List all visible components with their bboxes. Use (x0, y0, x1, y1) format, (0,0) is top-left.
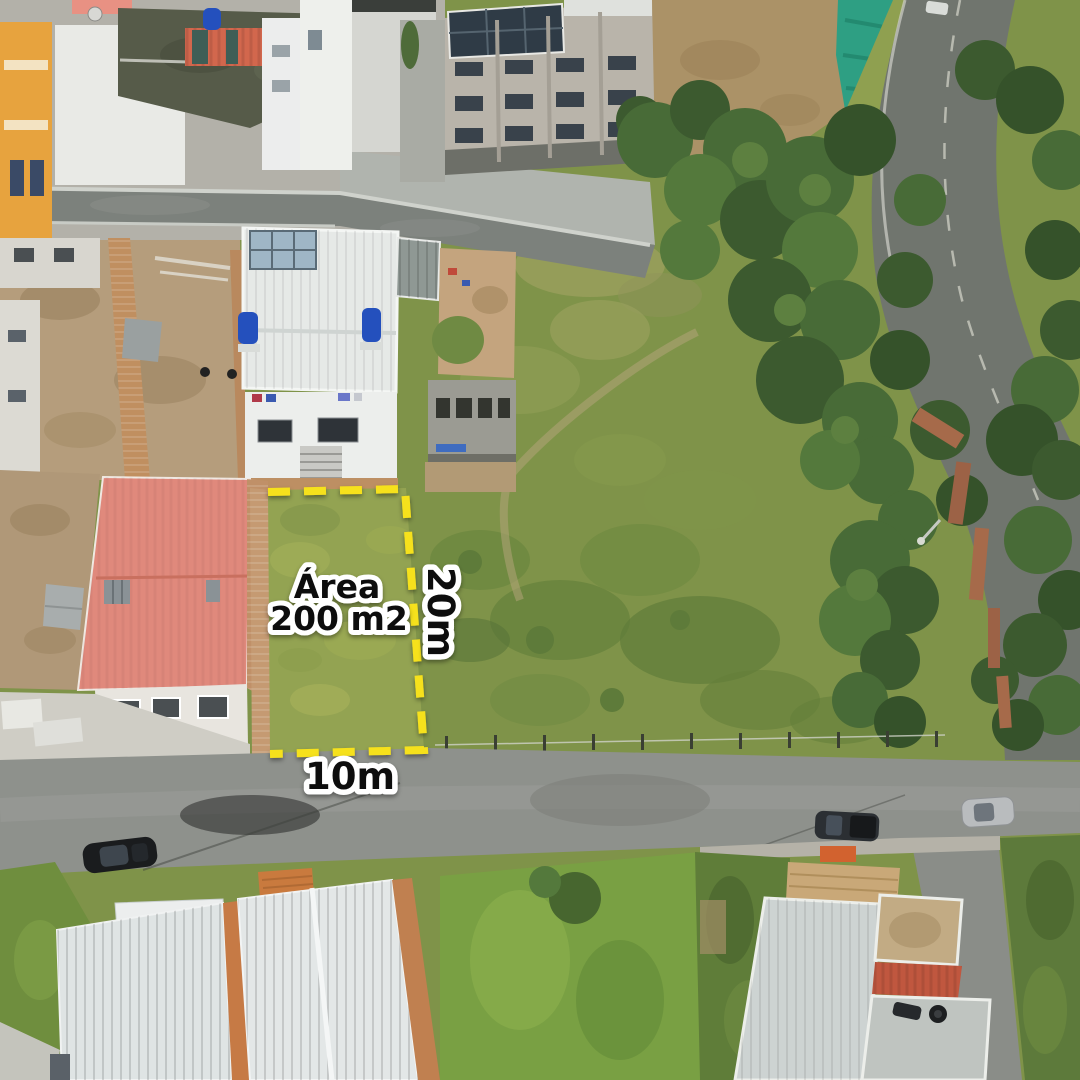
bottom-lawn (440, 852, 700, 1080)
orange-building (0, 22, 52, 254)
red-tile-roof (185, 28, 262, 66)
side-length-label: 20m (419, 567, 462, 657)
satellite-dish (88, 7, 102, 21)
aerial-scene: Área 200 m2 20m 10m (0, 0, 1080, 1080)
salmon-roof (78, 477, 250, 690)
unfinished-house (428, 380, 516, 462)
front-length-label: 10m (305, 755, 395, 798)
white-house-c (300, 0, 352, 170)
pickup-truck (814, 810, 879, 841)
area-label-line2: 200 m2 (270, 599, 408, 638)
shed-roof (122, 318, 162, 362)
water-tank (362, 308, 381, 342)
water-tank (203, 8, 221, 30)
bottom-house-2 (238, 868, 440, 1080)
water-tank (238, 312, 258, 344)
hedge (401, 21, 419, 69)
glass-skylight (250, 231, 316, 269)
bottom-house-1 (50, 899, 232, 1080)
red-roof-house (0, 470, 268, 764)
aerial-photo: Área 200 m2 20m 10m (0, 0, 1080, 1080)
construction-zone (0, 238, 245, 480)
white-house-center (238, 228, 398, 491)
silver-car (961, 796, 1015, 828)
concrete-pad (862, 996, 990, 1080)
